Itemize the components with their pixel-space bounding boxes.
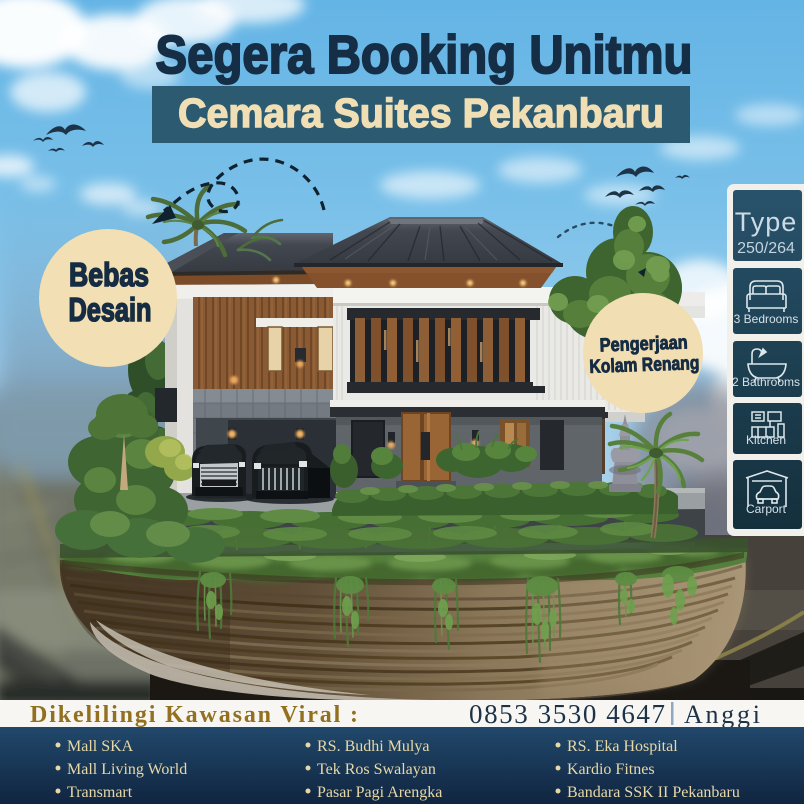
svg-text:Type: Type: [735, 207, 798, 237]
svg-text:Bebas: Bebas: [69, 256, 149, 293]
svg-text:RS. Eka Hospital: RS. Eka Hospital: [567, 738, 678, 755]
svg-text:Bandara SSK II Pekanbaru: Bandara SSK II Pekanbaru: [567, 784, 740, 801]
svg-text:Mall SKA: Mall SKA: [67, 738, 134, 755]
svg-text:Pengerjaan: Pengerjaan: [599, 332, 688, 356]
svg-text:Cemara Suites Pekanbaru: Cemara Suites Pekanbaru: [178, 90, 664, 136]
svg-text:Kardio Fitnes: Kardio Fitnes: [567, 761, 655, 778]
svg-text:2 Bathrooms: 2 Bathrooms: [732, 375, 800, 389]
svg-text:0853 3530 4647: 0853 3530 4647: [469, 699, 665, 729]
svg-text:Dikelilingi Kawasan Viral :: Dikelilingi Kawasan Viral :: [30, 702, 358, 728]
svg-text:Kitchen: Kitchen: [746, 433, 786, 447]
svg-text:250/264: 250/264: [737, 240, 795, 257]
svg-text:Tek Ros Swalayan: Tek Ros Swalayan: [317, 761, 436, 778]
svg-text:RS. Budhi Mulya: RS. Budhi Mulya: [317, 738, 429, 755]
svg-text:Segera Booking Unitmu: Segera Booking Unitmu: [156, 25, 693, 85]
svg-text:Desain: Desain: [69, 291, 152, 328]
svg-text:Pasar Pagi Arengka: Pasar Pagi Arengka: [317, 784, 442, 801]
svg-text:Transmart: Transmart: [67, 784, 133, 801]
svg-text:Kolam Renang: Kolam Renang: [589, 353, 700, 378]
svg-text:Carport: Carport: [746, 502, 787, 516]
svg-text:Mall Living World: Mall Living World: [67, 761, 187, 778]
svg-text:Anggi: Anggi: [684, 700, 760, 729]
svg-text:3 Bedrooms: 3 Bedrooms: [734, 312, 799, 326]
